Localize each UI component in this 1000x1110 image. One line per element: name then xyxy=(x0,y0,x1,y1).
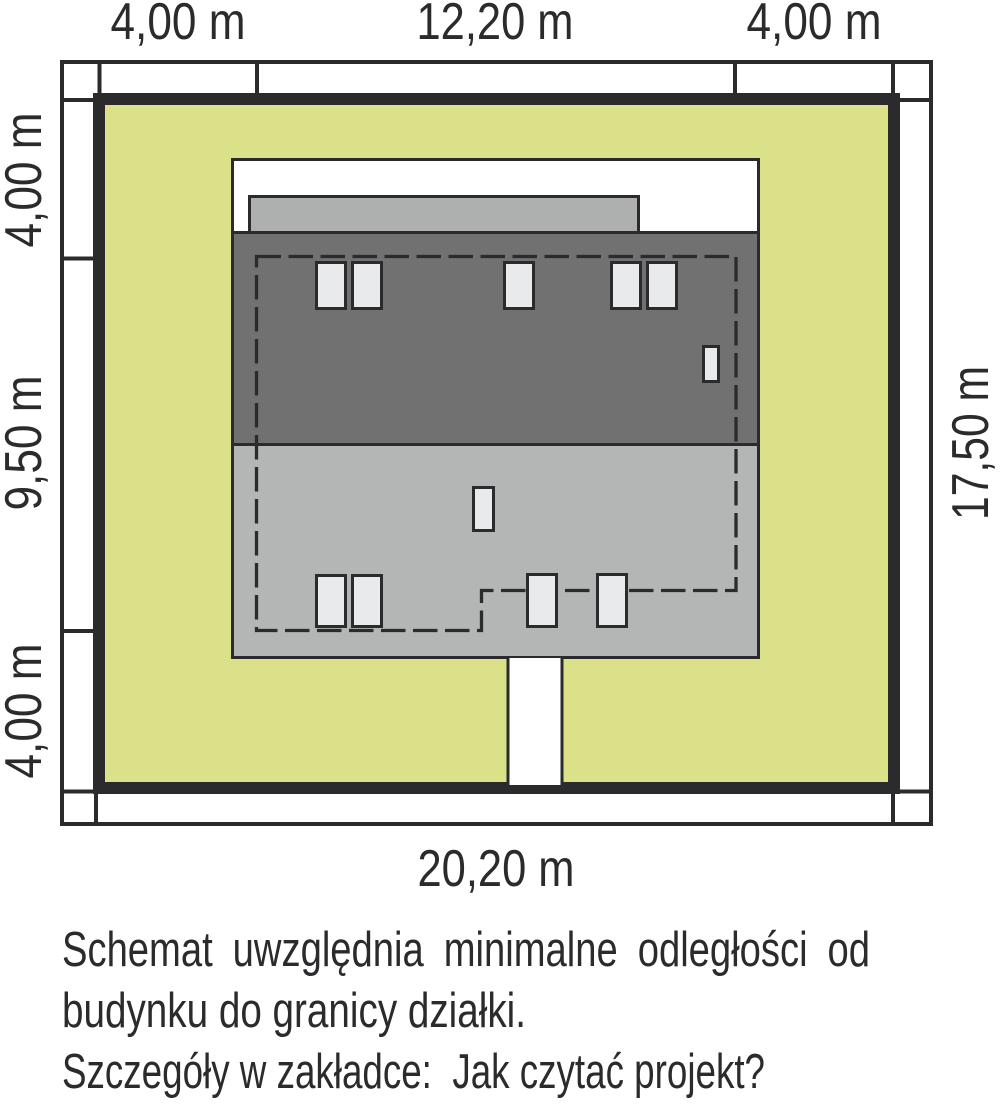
svg-text:4,00 m: 4,00 m xyxy=(111,0,246,51)
svg-text:20,20 m: 20,20 m xyxy=(418,840,575,898)
svg-text:Szczegóły w zakładce: Jak czy: Szczegóły w zakładce: Jak czytać projekt… xyxy=(62,1045,765,1099)
svg-text:4,00 m: 4,00 m xyxy=(747,0,882,51)
svg-text:4,00 m: 4,00 m xyxy=(0,113,53,248)
svg-text:12,20 m: 12,20 m xyxy=(417,0,574,51)
svg-text:17,50 m: 17,50 m xyxy=(942,366,1000,520)
svg-text:9,50 m: 9,50 m xyxy=(0,376,53,511)
svg-text:Schemat uwzględnia minimalne o: Schemat uwzględnia minimalne odległości … xyxy=(62,923,870,977)
svg-text:budynku do granicy działki.: budynku do granicy działki. xyxy=(62,984,526,1038)
svg-text:4,00 m: 4,00 m xyxy=(0,644,53,779)
